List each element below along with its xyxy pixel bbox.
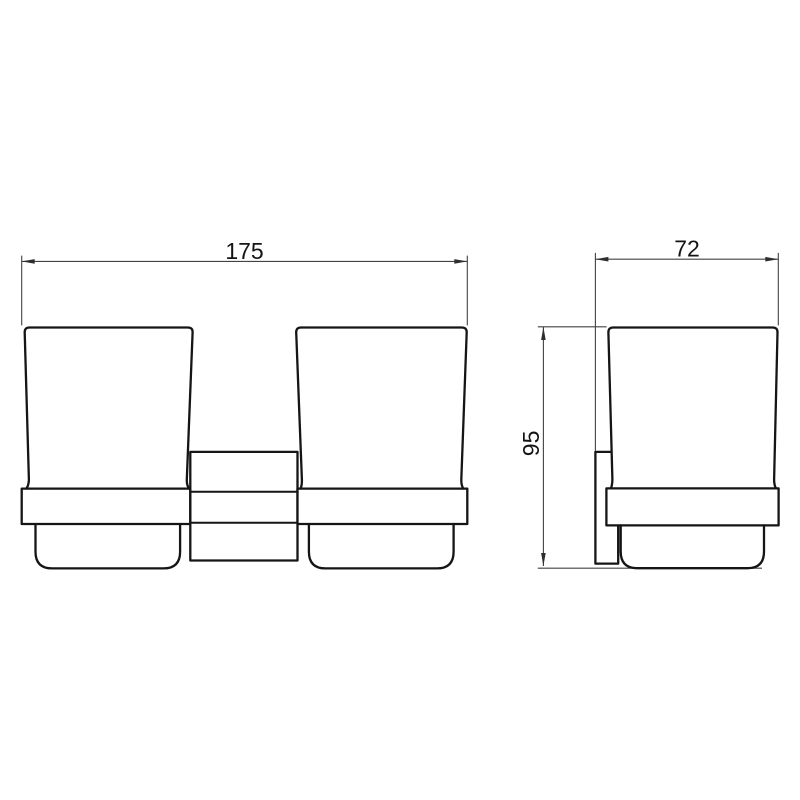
dimension-height-label: 95 <box>518 431 544 457</box>
holder-collar-side <box>606 488 778 525</box>
dimension-width-label: 175 <box>225 238 263 264</box>
technical-drawing: 175 72 95 <box>0 0 800 800</box>
wall-bracket-front <box>190 452 297 561</box>
holder-collar-left <box>22 489 191 524</box>
dimension-depth-label: 72 <box>674 236 700 262</box>
drawing-canvas: 175 72 95 <box>0 0 800 800</box>
holder-collar-right <box>298 489 468 524</box>
glass-tumbler-side <box>608 328 777 489</box>
